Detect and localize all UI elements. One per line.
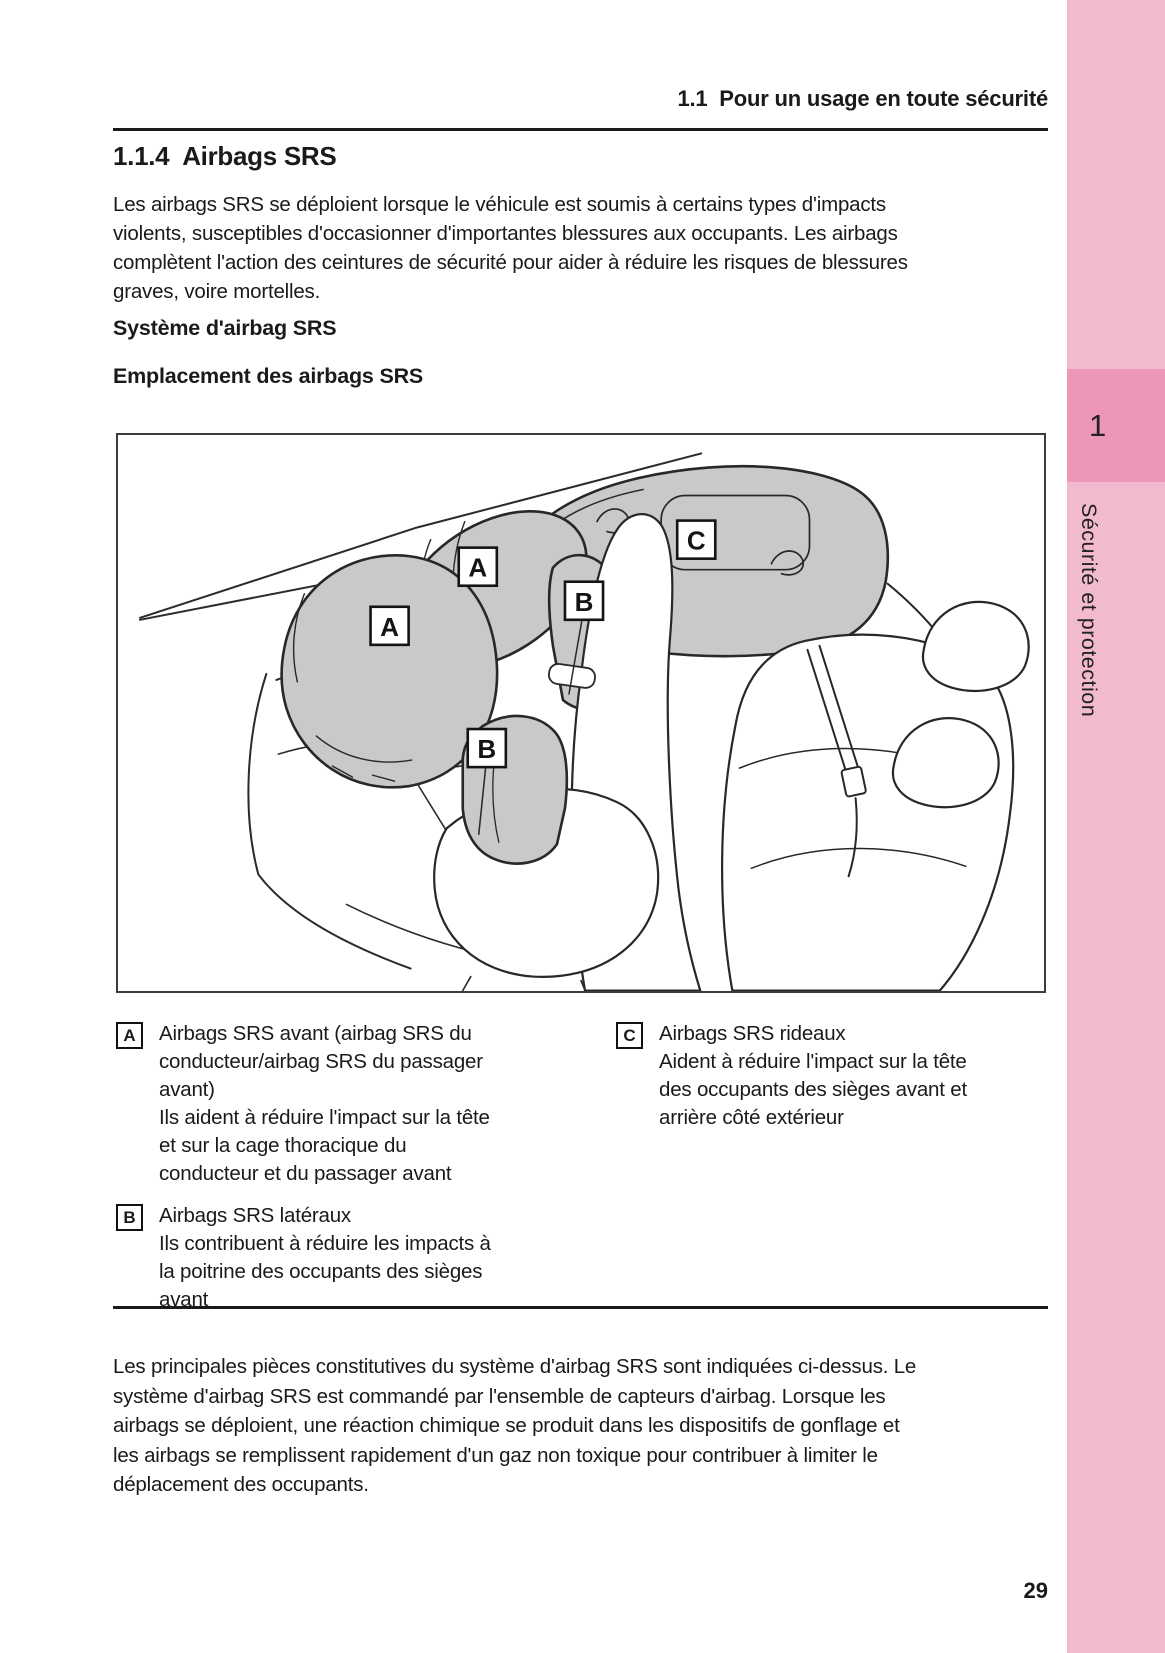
legend-marker-a: A [116,1022,143,1049]
subhead-airbag-location: Emplacement des airbags SRS [113,364,423,389]
intro-paragraph: Les airbags SRS se déploient lorsque le … [113,190,1045,306]
chapter-label-vertical: Sécurité et protection [1076,503,1101,717]
outro-paragraph: Les principales pièces constitutives du … [113,1352,1045,1500]
running-header: 1.1 Pour un usage en toute sécurité [677,86,1048,112]
legend-text-b: Airbags SRS latéraux Ils contribuent à r… [159,1202,491,1314]
legend-item-b: B Airbags SRS latéraux Ils contribuent à… [116,1202,616,1314]
rear-seat [722,602,1029,991]
figure-label-front-driver: A [371,607,409,645]
legend-item-a: A Airbags SRS avant (airbag SRS du condu… [116,1020,616,1188]
legend-rule [113,1306,1048,1309]
figure-legend: A Airbags SRS avant (airbag SRS du condu… [116,1020,1048,1328]
subhead-airbag-system: Système d'airbag SRS [113,316,336,341]
chapter-sidebar-strip [1067,0,1165,1653]
figure-label-front-passenger: A [459,548,497,586]
airbag-location-figure: A A B B C [116,433,1046,993]
chapter-number: 1 [1089,408,1106,444]
legend-marker-b: B [116,1204,143,1231]
header-rule [113,128,1048,131]
legend-item-c: C Airbags SRS rideaux Aident à réduire l… [616,1020,1048,1132]
legend-text-a: Airbags SRS avant (airbag SRS du conduct… [159,1020,490,1188]
legend-column-left: A Airbags SRS avant (airbag SRS du condu… [116,1020,616,1328]
legend-marker-c: C [616,1022,643,1049]
section-title: 1.1.4 Airbags SRS [113,141,336,172]
legend-column-right: C Airbags SRS rideaux Aident à réduire l… [616,1020,1048,1328]
car-interior-illustration: A A B B C [118,435,1044,991]
page-content: 1.1 Pour un usage en toute sécurité 1.1.… [113,0,1048,1653]
page-number: 29 [1024,1578,1048,1604]
figure-label-side-upper: B [565,582,603,620]
svg-text:C: C [687,526,706,556]
chapter-tab: 1 [1067,369,1165,482]
figure-label-side-lower: B [468,729,506,767]
seatbelt-buckle-icon [841,766,866,797]
figure-label-curtain: C [677,521,715,559]
legend-text-c: Airbags SRS rideaux Aident à réduire l'i… [659,1020,967,1132]
svg-text:B: B [575,587,594,617]
svg-text:B: B [477,734,496,764]
svg-text:A: A [380,612,399,642]
manual-page: { "page": { "header": { "title": "1.1 Po… [0,0,1165,1653]
svg-text:A: A [468,553,487,583]
